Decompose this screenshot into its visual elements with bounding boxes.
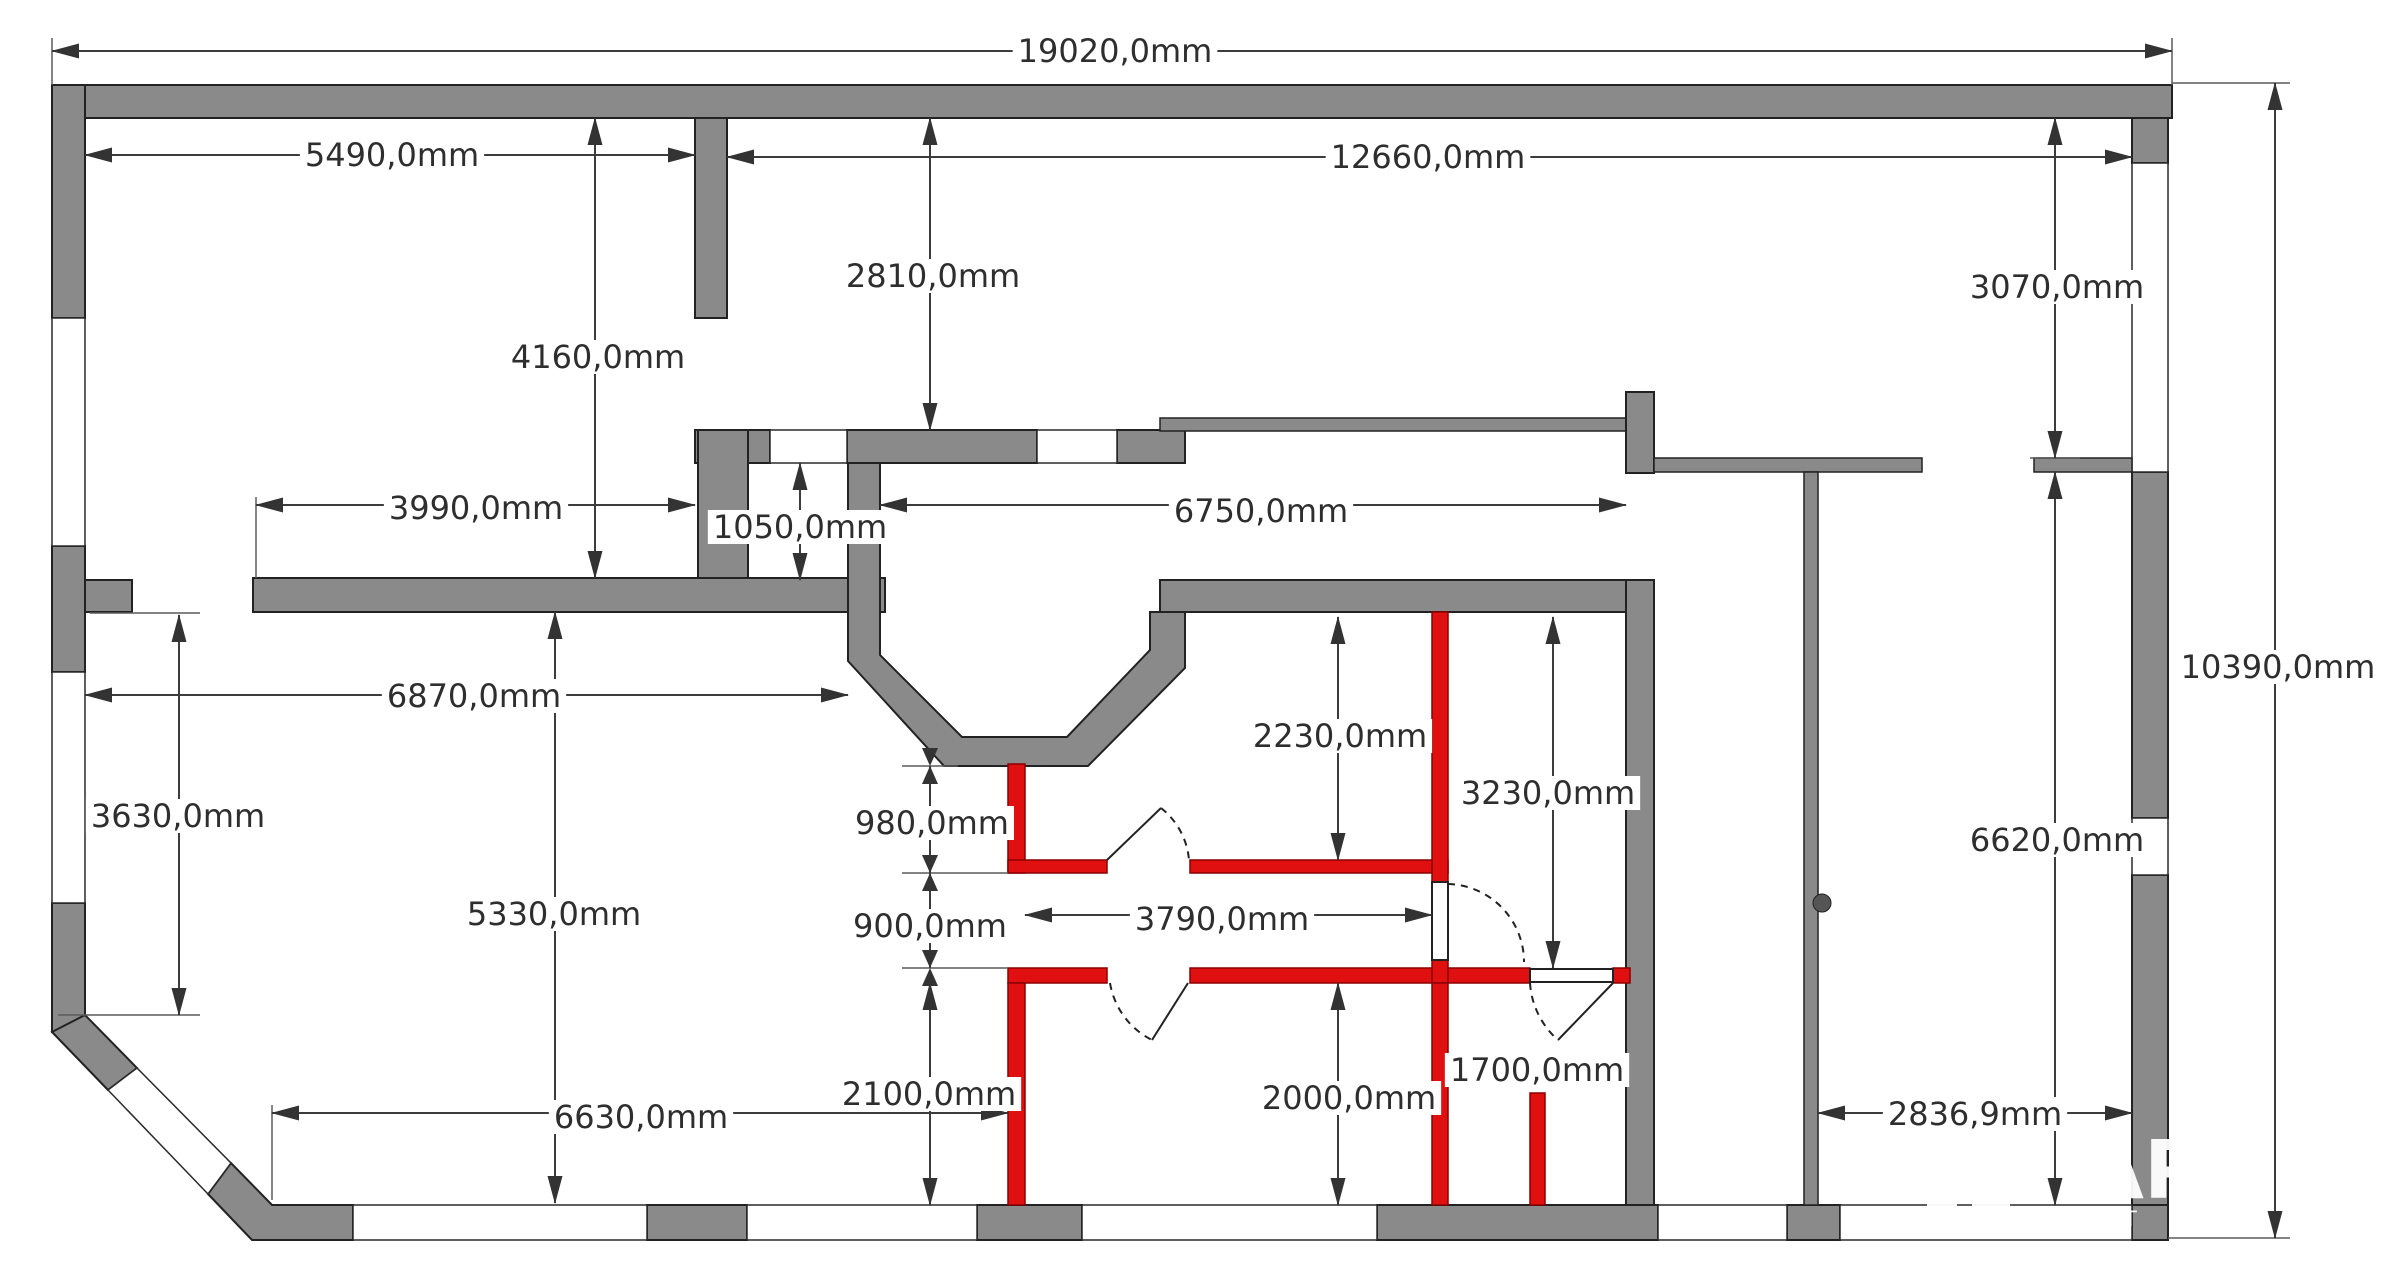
door-upper-leaf	[1107, 808, 1161, 860]
main-vertical-wall-bottom	[1626, 580, 1654, 1205]
red-wall-stub	[1530, 1093, 1545, 1205]
dimension-label-3230: 3230,0mm	[1456, 774, 1640, 812]
svg-text:10390,0mm: 10390,0mm	[2181, 648, 2376, 686]
left-wall-lower	[52, 903, 85, 1032]
watermark-logo-text: АР	[2082, 1124, 2203, 1217]
svg-text:1700,0mm: 1700,0mm	[1450, 1051, 1624, 1089]
dimension-label-1700: 1700,0mm	[1445, 1051, 1629, 1089]
dimension-label-5490: 5490,0mm	[300, 136, 484, 174]
topright-room-wall-2	[2034, 458, 2132, 472]
svg-text:6630,0mm: 6630,0mm	[554, 1098, 728, 1136]
svg-text:1050,0mm: 1050,0mm	[713, 508, 887, 546]
window-bottom-4	[1658, 1205, 1787, 1240]
svg-text:3230,0mm: 3230,0mm	[1461, 774, 1635, 812]
middleroom-nwall-3	[1117, 430, 1185, 463]
door-lower-left-arc	[1110, 983, 1152, 1040]
topright-room-wall-1	[1654, 458, 1922, 472]
dimension-label-3630: 3630,0mm	[86, 797, 270, 835]
svg-text:5490,0mm: 5490,0mm	[305, 136, 479, 174]
watermark-tiny-text: о	[2258, 1206, 2268, 1225]
bottom-wall-seg1	[647, 1205, 747, 1240]
bottom-wall-seg2	[977, 1205, 1082, 1240]
red-corridor-swall-2	[1190, 968, 1530, 983]
window-right-1	[2132, 163, 2168, 472]
interior-walls	[253, 118, 2132, 1205]
dimension-label-2230: 2230,0mm	[1248, 717, 1432, 755]
left-wall-pier	[85, 580, 132, 612]
svg-text:2810,0mm: 2810,0mm	[846, 257, 1020, 295]
window-left-2	[52, 672, 85, 903]
dimension-label-6620: 6620,0mm	[1965, 821, 2149, 859]
svg-text:19020,0mm: 19020,0mm	[1018, 32, 1213, 70]
floor-plan-canvas: 19020,0mm5490,0mm12660,0mm2810,0mm4160,0…	[0, 0, 2390, 1280]
dimension-label-6630: 6630,0mm	[549, 1098, 733, 1136]
dimension-label-900: 900,0mm	[848, 907, 1012, 945]
svg-text:4160,0mm: 4160,0mm	[511, 338, 685, 376]
bay-wall	[848, 463, 1185, 766]
bottom-wall-seg4	[1787, 1205, 1840, 1240]
window-nwall-2	[1037, 430, 1117, 463]
door-lower-right-leaf-closed	[1530, 969, 1613, 982]
stub-wall-top	[695, 118, 727, 318]
svg-text:3070,0mm: 3070,0mm	[1970, 268, 2144, 306]
red-corridor-swall-1	[1008, 968, 1107, 983]
red-corridor-swall-3	[1613, 968, 1630, 983]
exterior-walls	[52, 85, 2172, 1240]
dimension-label-6750: 6750,0mm	[1169, 492, 1353, 530]
dimension-label-12660: 12660,0mm	[1326, 138, 1531, 176]
door-vertical-arc	[1448, 884, 1524, 962]
svg-text:3790,0mm: 3790,0mm	[1135, 900, 1309, 938]
watermark-dash-2	[1972, 1201, 2010, 1210]
svg-text:6870,0mm: 6870,0mm	[387, 677, 561, 715]
red-vertical-wall-upper	[1432, 612, 1448, 882]
door-upper-arc	[1161, 808, 1189, 860]
dimension-label-19020: 19020,0mm	[1013, 32, 1218, 70]
dimension-label-2100: 2100,0mm	[837, 1075, 1021, 1113]
window-left-1	[52, 318, 85, 546]
svg-text:6620,0mm: 6620,0mm	[1970, 821, 2144, 859]
svg-text:3630,0mm: 3630,0mm	[91, 797, 265, 835]
top-wall	[52, 85, 2172, 118]
door-lower-left-leaf	[1152, 983, 1188, 1040]
left-wall-upper	[52, 85, 85, 318]
dimension-label-980: 980,0mm	[850, 804, 1014, 842]
east-interior-wall	[1160, 580, 1626, 612]
right-wall-top	[2132, 118, 2168, 163]
middleroom-nwall-2	[847, 430, 1037, 463]
left-wall-middle	[52, 546, 85, 672]
floor-plan-page: 19020,0mm5490,0mm12660,0mm2810,0mm4160,0…	[0, 0, 2390, 1280]
window-chamfer	[108, 1068, 231, 1194]
door-knob	[1813, 894, 1831, 912]
dimension-label-2836_9: 2836,9mm	[1883, 1095, 2067, 1133]
main-vertical-wall-top	[1626, 392, 1654, 473]
middleroom-nwall-thin	[1160, 418, 1630, 431]
red-corridor-nwall-2	[1190, 860, 1448, 873]
svg-text:900,0mm: 900,0mm	[853, 907, 1007, 945]
dimension-label-3070: 3070,0mm	[1965, 268, 2149, 306]
right-partition-wall	[1804, 472, 1818, 1205]
dimension-label-6870: 6870,0mm	[382, 677, 566, 715]
door-lower-right-arc	[1530, 983, 1558, 1040]
svg-text:5330,0mm: 5330,0mm	[467, 895, 641, 933]
watermark-dash-1	[1927, 1201, 1957, 1210]
window-bottom-1	[353, 1205, 647, 1240]
dimension-label-4160: 4160,0mm	[506, 338, 690, 376]
chamfer-wall-lower	[208, 1163, 353, 1240]
door-lower-right-leaf	[1558, 983, 1613, 1040]
svg-text:2000,0mm: 2000,0mm	[1262, 1079, 1436, 1117]
door-vertical-leaf	[1432, 882, 1448, 960]
bowtie-arrows	[922, 748, 938, 986]
dimension-label-2810: 2810,0mm	[841, 257, 1025, 295]
dimension-label-5330: 5330,0mm	[462, 895, 646, 933]
dimension-label-3990: 3990,0mm	[384, 489, 568, 527]
svg-text:6750,0mm: 6750,0mm	[1174, 492, 1348, 530]
window-nwall-1	[770, 430, 847, 463]
svg-text:2230,0mm: 2230,0mm	[1253, 717, 1427, 755]
dimension-label-1050: 1050,0mm	[708, 508, 892, 546]
west-interior-wall	[253, 578, 885, 612]
dimension-label-2000: 2000,0mm	[1257, 1079, 1441, 1117]
svg-text:3990,0mm: 3990,0mm	[389, 489, 563, 527]
watermark-small-text: Т L	[2123, 1207, 2197, 1231]
red-corridor-nwall-1	[1008, 860, 1107, 873]
bottom-wall-seg3	[1377, 1205, 1658, 1240]
svg-text:12660,0mm: 12660,0mm	[1331, 138, 1526, 176]
dimension-label-10390: 10390,0mm	[2176, 648, 2381, 686]
dimension-label-3790: 3790,0mm	[1130, 900, 1314, 938]
window-bottom-3	[1082, 1205, 1377, 1240]
svg-text:2836,9mm: 2836,9mm	[1888, 1095, 2062, 1133]
right-wall-middle	[2132, 472, 2168, 818]
red-vertical-wall-mid	[1432, 960, 1448, 983]
window-bottom-2	[747, 1205, 977, 1240]
svg-text:2100,0mm: 2100,0mm	[842, 1075, 1016, 1113]
svg-text:980,0mm: 980,0mm	[855, 804, 1009, 842]
